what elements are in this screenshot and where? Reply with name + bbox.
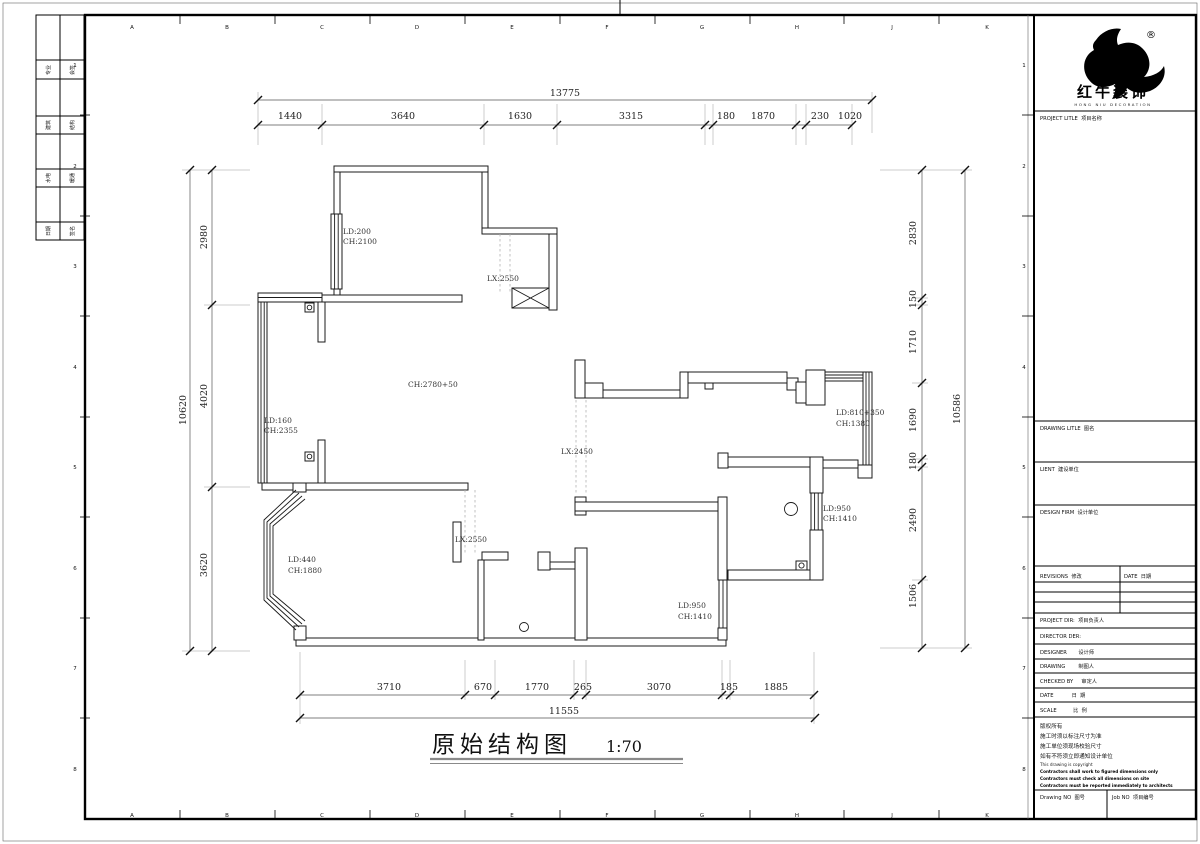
dim-value: 3710 xyxy=(377,682,401,693)
label-ch: CH:2780+50 xyxy=(408,380,458,389)
dim-value: 150 xyxy=(908,290,919,308)
signature-strip: 专业 会签 建筑 结构 水电 暖通 日期 签名 xyxy=(36,15,84,240)
dim-value: 1440 xyxy=(278,111,302,122)
dim-value: 1885 xyxy=(764,682,788,693)
zone-letter: D xyxy=(415,25,419,31)
dim-value: 1506 xyxy=(908,584,919,608)
copyright-line: 版权所有 xyxy=(1040,722,1063,730)
beam-lines xyxy=(465,234,586,553)
field-date-col: DATE 日期 xyxy=(1124,573,1151,580)
dim-value: 13775 xyxy=(550,88,580,99)
zone-letter: J xyxy=(890,25,893,31)
copyright-line: Contractors shall work to figured dimens… xyxy=(1040,769,1158,774)
drawing-scale: 1:70 xyxy=(606,737,642,756)
label-ld: LD:160 xyxy=(264,416,292,425)
dimensions-left: 10620 2980 4020 3620 xyxy=(178,166,250,655)
copyright-line: 施工时须以标注尺寸为准 xyxy=(1040,732,1102,740)
field-drawn-by: DRAWING 制图人 xyxy=(1040,662,1094,670)
registered-mark: ® xyxy=(1146,30,1156,41)
zone-letter: G xyxy=(700,813,704,819)
drain-circle xyxy=(520,623,529,632)
dimensions-top: 13775 1440 3640 1630 3315 180 1870 230 1… xyxy=(254,88,876,145)
dimensions-right: 10586 2830 150 1710 1690 180 2490 1506 xyxy=(880,166,972,652)
label-ch: CH:2355 xyxy=(264,426,298,435)
sig-cell: 结构 xyxy=(69,120,76,130)
label-ch: CH:1380 xyxy=(836,419,870,428)
dim-value: 3315 xyxy=(619,111,643,122)
dim-value: 185 xyxy=(720,682,738,693)
dim-value: 3640 xyxy=(391,111,415,122)
window-band-bottom-right xyxy=(719,580,727,628)
field-checked-by: CHECKED BY 审定人 xyxy=(1040,677,1097,685)
sig-cell: 会签 xyxy=(69,65,76,75)
zone-number: 6 xyxy=(73,566,77,572)
field-revisions: REVISIONS 修改 xyxy=(1040,572,1083,580)
dim-value: 230 xyxy=(811,111,829,122)
zone-number: 4 xyxy=(73,365,77,371)
zone-ruler-bottom: A B C D E F G H J K xyxy=(85,810,989,819)
dim-value: 1630 xyxy=(508,111,532,122)
zone-number: 6 xyxy=(1022,566,1026,572)
field-designer: DESIGNER 设计师 xyxy=(1040,648,1094,656)
pipe-symbol xyxy=(305,303,314,312)
zone-number: 7 xyxy=(1022,666,1026,672)
field-drawing-no: Drawing NO 图号 xyxy=(1040,794,1085,801)
label-ld: LD:810+350 xyxy=(836,408,885,417)
field-project-dir: PROJECT DIR: 项目负责人 xyxy=(1040,616,1104,624)
zone-letter: H xyxy=(795,25,799,31)
dim-value: 180 xyxy=(908,452,919,470)
zone-letter: D xyxy=(415,813,419,819)
sig-cell: 水电 xyxy=(45,173,52,183)
shaft-box xyxy=(512,288,549,308)
copyright-line: This drawing is copyright xyxy=(1039,762,1093,767)
dim-value: 10620 xyxy=(178,395,189,425)
dim-value: 1710 xyxy=(908,330,919,354)
label-ld: LD:200 xyxy=(343,227,371,236)
zone-letter: F xyxy=(605,25,608,31)
title-block: ® 红牛装饰 HONG NIU DECORATION PROJECT LITLE… xyxy=(1034,28,1196,819)
copyright-line: 如有不符须立即通知设计单位 xyxy=(1040,752,1113,760)
copyright-line: Contractors must be reported immediately… xyxy=(1040,783,1173,788)
dim-value: 2490 xyxy=(908,508,919,532)
dim-value: 1690 xyxy=(908,408,919,432)
label-ch: CH:1410 xyxy=(678,612,712,621)
dim-value: 11555 xyxy=(549,706,579,717)
label-lx: LX:2550 xyxy=(455,535,487,544)
zone-letter: J xyxy=(890,813,893,819)
sig-cell: 建筑 xyxy=(45,120,52,130)
label-lx: LX:2550 xyxy=(487,274,519,283)
dimensions-bottom: 3710 670 1770 265 3070 185 1885 11555 xyxy=(296,652,819,724)
label-ch: CH:1410 xyxy=(823,514,857,523)
drain-circle xyxy=(785,503,798,516)
field-director: DIRECTOR DER: xyxy=(1040,634,1081,640)
field-job-no: Job NO 项目编号 xyxy=(1111,793,1154,801)
zone-letter: A xyxy=(130,25,134,31)
zone-letter: B xyxy=(225,25,229,31)
field-date: DATE 日 期 xyxy=(1040,692,1085,699)
field-drawing-title: DRAWING LITLE 图名 xyxy=(1040,424,1094,432)
zone-letter: K xyxy=(985,25,989,31)
dim-value: 265 xyxy=(574,682,592,693)
zone-number: 7 xyxy=(73,666,77,672)
sig-cell: 签名 xyxy=(69,226,76,236)
zone-ruler-top: A B C D E F G H J K xyxy=(85,15,989,31)
field-client: LIENT 建设单位 xyxy=(1040,465,1079,473)
field-scale: SCALE 比 例 xyxy=(1040,706,1087,714)
cad-canvas: A B C D E F G H J K A B C D E F G H J K … xyxy=(0,0,1200,844)
drawing-title: 原始结构图 1:70 xyxy=(430,732,683,764)
zone-number: 3 xyxy=(73,264,77,270)
copyright-line: 施工单位须现场校验尺寸 xyxy=(1040,742,1102,750)
zone-number: 3 xyxy=(1022,264,1026,270)
label-ld: LD:440 xyxy=(288,555,316,564)
label-lx: LX:2450 xyxy=(561,447,593,456)
dim-value: 180 xyxy=(717,111,735,122)
zone-letter: F xyxy=(605,813,608,819)
dim-value: 2980 xyxy=(199,225,210,249)
zone-letter: A xyxy=(130,813,134,819)
brand-subtitle: HONG NIU DECORATION xyxy=(1074,102,1151,107)
zone-letter: C xyxy=(320,25,324,31)
zone-letter: B xyxy=(225,813,229,819)
window-band-bath xyxy=(811,493,822,530)
dim-value: 670 xyxy=(474,682,492,693)
page-title: 原始结构图 xyxy=(432,732,572,758)
zone-number: 1 xyxy=(1022,63,1026,69)
zone-number: 8 xyxy=(1022,767,1026,773)
label-ch: CH:1880 xyxy=(288,566,322,575)
field-project-title: PROJECT LITLE 项目名称 xyxy=(1040,114,1102,122)
brand-name: 红牛装饰 xyxy=(1077,83,1149,101)
zone-number: 5 xyxy=(73,465,77,471)
zone-letter: E xyxy=(510,25,514,31)
copyright-line: Contractors must check all dimensions on… xyxy=(1040,776,1149,781)
label-ld: LD:950 xyxy=(678,601,706,610)
dim-value: 3620 xyxy=(199,553,210,577)
zone-letter: H xyxy=(795,813,799,819)
pipe-symbol xyxy=(796,561,807,570)
dim-value: 2830 xyxy=(908,221,919,245)
window-band-top-left xyxy=(331,214,342,289)
dim-value: 4020 xyxy=(199,384,210,408)
zone-number: 2 xyxy=(1022,164,1026,170)
zone-number: 8 xyxy=(73,767,77,773)
brand-logo: ® 红牛装饰 HONG NIU DECORATION xyxy=(1074,28,1164,107)
pipe-symbol xyxy=(305,452,314,461)
zone-letter: C xyxy=(320,813,324,819)
zone-number: 4 xyxy=(1022,365,1026,371)
dim-value: 1870 xyxy=(751,111,775,122)
zone-letter: E xyxy=(510,813,514,819)
sig-cell: 日期 xyxy=(46,226,52,236)
zone-letter: K xyxy=(985,813,989,819)
floor-plan: LD:200 CH:2100 LX:2550 CH:2780+50 LD:160… xyxy=(258,166,885,646)
dim-value: 1020 xyxy=(838,111,862,122)
zone-number: 5 xyxy=(1022,465,1026,471)
field-design-firm: DESIGN FIRM 设计单位 xyxy=(1040,508,1098,516)
label-ld: LD:950 xyxy=(823,504,851,513)
sig-cell: 暖通 xyxy=(69,173,76,183)
copyright-note: 版权所有 施工时须以标注尺寸为准 施工单位须现场校验尺寸 如有不符须立即通知设计… xyxy=(1039,722,1173,788)
drawing-sheet: A B C D E F G H J K A B C D E F G H J K … xyxy=(0,0,1200,844)
zone-letter: G xyxy=(700,25,704,31)
dim-value: 3070 xyxy=(647,682,671,693)
sig-cell: 专业 xyxy=(45,65,52,75)
label-ch: CH:2100 xyxy=(343,237,377,246)
dim-value: 1770 xyxy=(525,682,549,693)
dim-value: 10586 xyxy=(952,394,963,424)
